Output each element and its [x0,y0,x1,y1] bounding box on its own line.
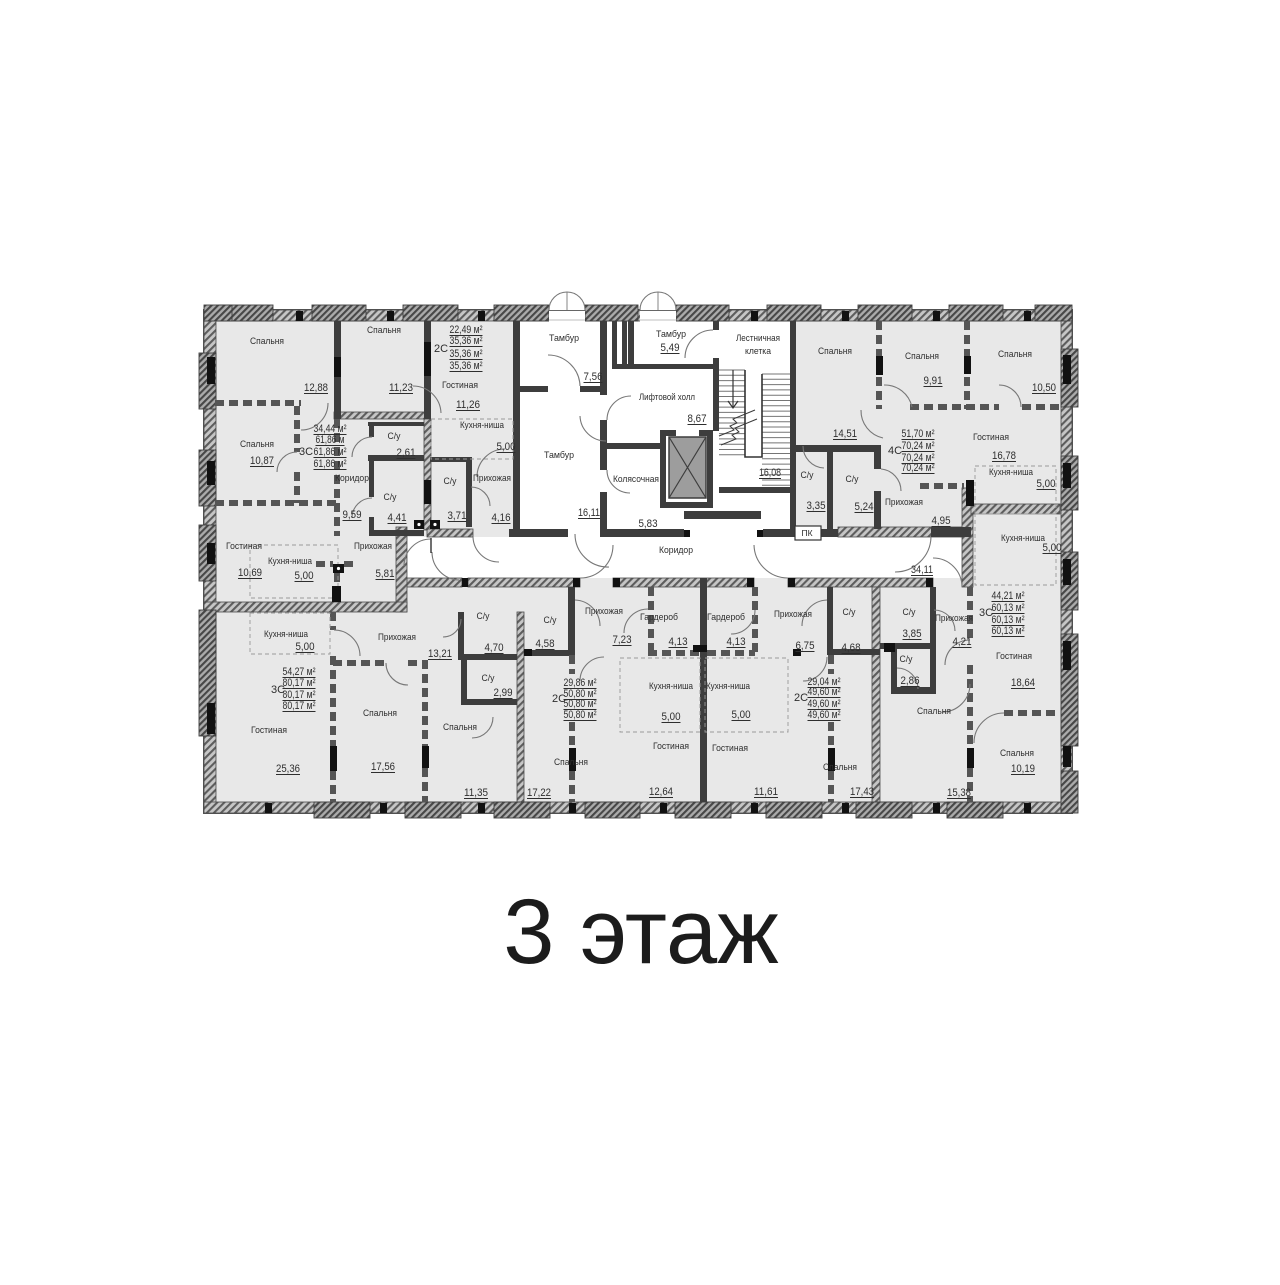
svg-text:С/у: С/у [544,615,557,625]
svg-text:17,43: 17,43 [850,786,874,798]
svg-text:Гостиная: Гостиная [973,432,1009,442]
svg-text:Спальня: Спальня [363,708,397,718]
svg-text:70,24 м²: 70,24 м² [902,440,935,452]
svg-text:С/у: С/у [846,474,859,484]
svg-text:Тамбур: Тамбур [656,329,686,339]
svg-text:12,64: 12,64 [649,786,673,798]
svg-text:2,86: 2,86 [901,675,920,687]
svg-text:С/у: С/у [801,470,814,480]
svg-text:44,21 м²: 44,21 м² [992,590,1025,602]
svg-text:5,83: 5,83 [639,518,658,530]
svg-text:Спальня: Спальня [917,706,951,716]
svg-text:80,17 м²: 80,17 м² [283,700,316,712]
svg-text:10,69: 10,69 [238,567,262,579]
svg-text:7,23: 7,23 [613,634,632,646]
svg-text:61,86 м²: 61,86 м² [314,446,347,458]
svg-text:С/у: С/у [384,492,397,502]
svg-text:3,71: 3,71 [448,510,467,522]
svg-text:10,50: 10,50 [1032,382,1056,394]
svg-text:16,11: 16,11 [578,507,600,519]
svg-text:С/у: С/у [477,611,490,621]
svg-text:17,22: 17,22 [527,787,551,799]
svg-text:61,86 м: 61,86 м [316,434,345,446]
svg-text:10,19: 10,19 [1011,763,1035,775]
svg-text:2,61: 2,61 [397,447,416,459]
svg-text:12,88: 12,88 [304,382,328,394]
svg-text:17,56: 17,56 [371,761,395,773]
svg-text:Гостиная: Гостиная [442,380,478,390]
svg-text:11,35: 11,35 [464,787,488,799]
svg-text:Гостиная: Гостиная [251,725,287,735]
svg-text:Коридор: Коридор [659,545,693,555]
svg-text:Тамбур: Тамбур [549,333,579,343]
svg-text:4,16: 4,16 [492,512,511,524]
svg-text:4,58: 4,58 [536,638,555,650]
svg-text:С/у: С/у [900,654,913,664]
svg-text:Гостиная: Гостиная [712,743,748,753]
svg-text:61,86 м²: 61,86 м² [314,458,347,470]
svg-text:34,11: 34,11 [911,564,933,576]
svg-text:6,75: 6,75 [796,640,815,652]
svg-text:51,70 м²: 51,70 м² [902,428,935,440]
svg-text:60,13 м²: 60,13 м² [992,625,1025,637]
svg-text:16,78: 16,78 [992,450,1016,462]
svg-text:Спальня: Спальня [443,722,477,732]
svg-text:3 этаж: 3 этаж [503,881,779,983]
svg-text:18,64: 18,64 [1011,677,1035,689]
svg-text:Гардероб: Гардероб [640,612,678,622]
svg-text:С/у: С/у [903,607,916,617]
svg-text:35,36 м²: 35,36 м² [450,348,483,360]
svg-text:Спальня: Спальня [367,325,401,335]
svg-text:С/у: С/у [388,431,401,441]
svg-text:5,00: 5,00 [1037,478,1056,490]
svg-text:80,17 м²: 80,17 м² [283,677,316,689]
svg-text:4,68: 4,68 [842,642,861,654]
svg-text:Спальня: Спальня [905,351,939,361]
svg-text:14,51: 14,51 [833,428,857,440]
svg-text:16,08: 16,08 [759,467,781,479]
svg-text:4,13: 4,13 [727,636,746,648]
svg-text:Прихожая: Прихожая [774,609,812,619]
svg-text:Кухня-ниша: Кухня-ниша [706,681,751,691]
svg-text:9,59: 9,59 [343,509,362,521]
svg-text:5,00: 5,00 [732,709,751,721]
svg-text:49,60 м²: 49,60 м² [808,686,841,698]
svg-text:13,21: 13,21 [428,648,452,660]
svg-text:5,00: 5,00 [296,641,315,653]
svg-text:Лестничная: Лестничная [736,333,780,343]
svg-text:5,49: 5,49 [661,342,680,354]
svg-text:35,36 м²: 35,36 м² [450,360,483,372]
svg-text:Колясочная: Колясочная [613,474,659,484]
svg-text:70,24 м²: 70,24 м² [902,462,935,474]
svg-text:4С: 4С [888,445,902,457]
svg-text:35,36 м²: 35,36 м² [450,335,483,347]
svg-text:25,36: 25,36 [276,763,300,775]
svg-text:Кухня-ниша: Кухня-ниша [989,467,1034,477]
svg-text:Гостиная: Гостиная [226,541,262,551]
svg-text:ПК: ПК [801,528,812,538]
svg-text:клетка: клетка [745,346,772,356]
svg-text:5,24: 5,24 [855,501,874,513]
svg-text:49,60 м²: 49,60 м² [808,709,841,721]
svg-text:2,99: 2,99 [494,687,513,699]
svg-text:7,56: 7,56 [584,371,603,383]
svg-text:Прихожая: Прихожая [378,632,416,642]
svg-text:Гардероб: Гардероб [707,612,745,622]
svg-text:3,85: 3,85 [903,628,922,640]
svg-text:4,70: 4,70 [485,642,504,654]
svg-text:Спальня: Спальня [823,762,857,772]
svg-text:11,23: 11,23 [389,382,413,394]
svg-text:Кухня-ниша: Кухня-ниша [268,556,313,566]
svg-text:Спальня: Спальня [250,336,284,346]
svg-text:5,00: 5,00 [662,711,681,723]
svg-text:Кухня-ниша: Кухня-ниша [649,681,694,691]
svg-text:3,35: 3,35 [807,500,826,512]
svg-text:3С: 3С [299,446,313,458]
svg-text:4,41: 4,41 [388,512,407,524]
svg-text:Кухня-ниша: Кухня-ниша [264,629,309,639]
svg-text:Кухня-ниша: Кухня-ниша [1001,533,1046,543]
svg-text:С/у: С/у [843,607,856,617]
svg-text:С/у: С/у [444,476,457,486]
svg-text:Гостиная: Гостиная [653,741,689,751]
svg-text:Прихожая: Прихожая [473,473,511,483]
svg-text:2С: 2С [794,692,808,704]
svg-text:4,13: 4,13 [669,636,688,648]
svg-text:Спальня: Спальня [818,346,852,356]
svg-text:Кухня-ниша: Кухня-ниша [460,420,505,430]
svg-text:Спальня: Спальня [554,757,588,767]
svg-text:Спальня: Спальня [240,439,274,449]
svg-text:50,80 м²: 50,80 м² [564,709,597,721]
svg-text:4,21: 4,21 [953,636,972,648]
svg-text:9,91: 9,91 [924,375,943,387]
svg-text:11,26: 11,26 [456,399,480,411]
svg-text:Лифтовой холл: Лифтовой холл [639,392,695,402]
svg-text:5,00: 5,00 [1043,542,1062,554]
svg-text:5,00: 5,00 [295,570,314,582]
svg-text:Прихожая: Прихожая [354,541,392,551]
svg-text:Прихожая: Прихожая [935,613,973,623]
svg-text:Коридор: Коридор [335,473,369,483]
svg-text:5,81: 5,81 [376,568,395,580]
svg-text:2С: 2С [434,343,448,355]
svg-text:С/у: С/у [482,673,495,683]
svg-text:Тамбур: Тамбур [544,450,574,460]
svg-text:Спальня: Спальня [1000,748,1034,758]
svg-text:Прихожая: Прихожая [885,497,923,507]
svg-text:11,61: 11,61 [754,786,778,798]
svg-text:4,95: 4,95 [932,515,951,527]
svg-text:10,87: 10,87 [250,455,274,467]
svg-text:60,13 м²: 60,13 м² [992,602,1025,614]
svg-text:5,00: 5,00 [497,441,516,453]
svg-text:Спальня: Спальня [998,349,1032,359]
svg-text:15,38: 15,38 [947,787,971,799]
svg-text:8,67: 8,67 [688,413,707,425]
svg-text:Гостиная: Гостиная [996,651,1032,661]
svg-text:Прихожая: Прихожая [585,606,623,616]
